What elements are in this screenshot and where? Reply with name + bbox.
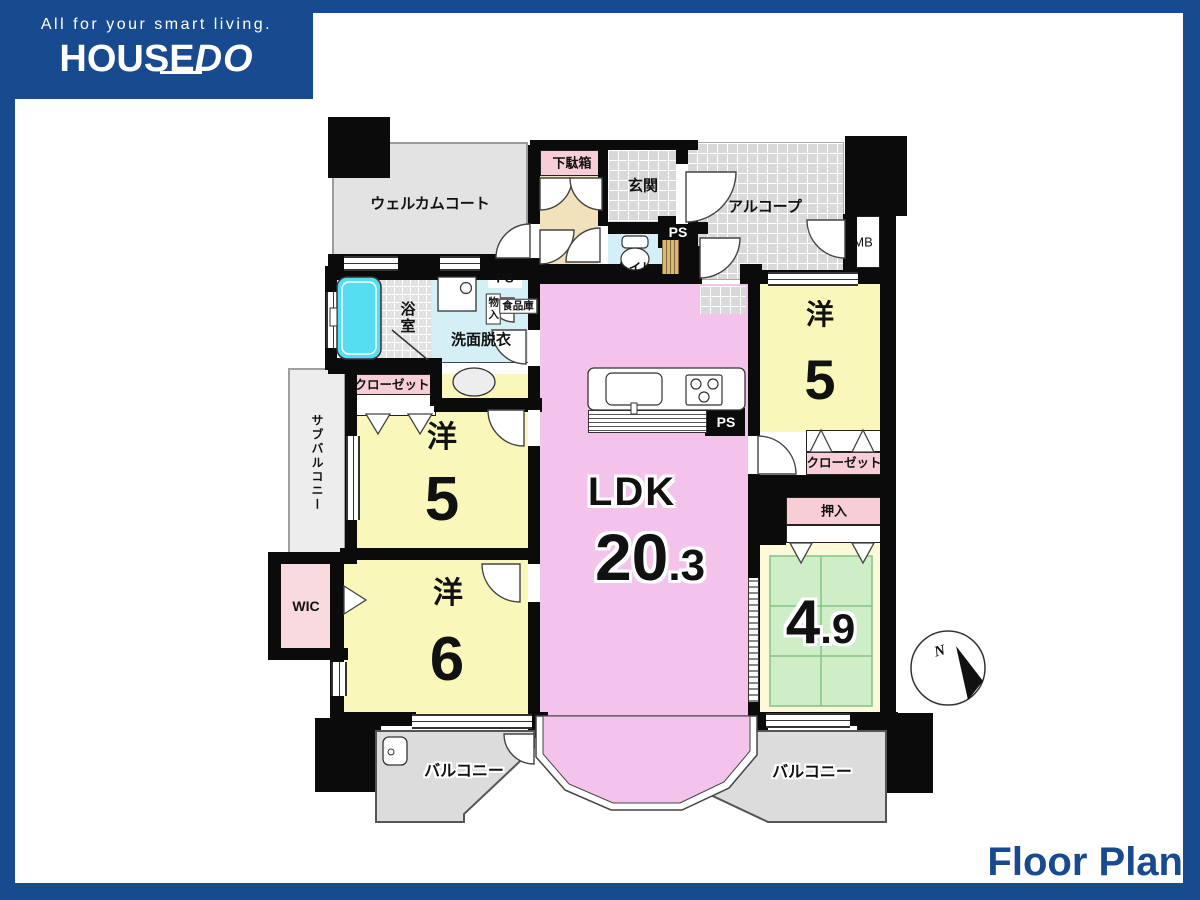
label-japanese-size: 4.9 [758,592,883,654]
japanese-size-dec: .9 [820,605,855,652]
wall [752,475,896,497]
ldk-entry-tile [700,286,746,314]
closet-left-door [356,394,436,416]
wall [340,548,532,560]
bay-window-outer [536,716,757,810]
frame-bottom [0,883,1200,900]
label-west5-right-type: 洋 [806,301,834,329]
label-balcony-right: バルコニー [772,765,852,781]
compass [911,631,985,705]
door-gap [528,330,540,366]
page-title: Floor Plan [987,840,1183,885]
label-shoe-box: 下駄箱 [552,157,591,170]
compass-needle [956,646,983,700]
label-closet-right: クローゼット [806,457,881,470]
door-gap [528,564,540,602]
corner-block-br [857,713,933,793]
label-closet-left: クローゼット [354,379,429,392]
ldk-size-dec: .3 [668,541,705,590]
wall [268,552,281,660]
label-alcove: アルコープ [728,200,802,215]
brand-logo-block: All for your smart living. HOUSEDO [0,0,313,99]
window [344,256,398,271]
label-ldk-size: 20.3 [545,524,755,590]
balcony-faucet [383,737,407,765]
wall [756,495,786,545]
label-storage: 物入 [486,294,501,325]
window [440,256,480,271]
label-entrance: 玄関 [628,179,658,194]
brand-logo: HOUSEDO [0,38,313,81]
frame-right [1183,0,1200,900]
label-west6-type: 洋 [433,579,463,609]
door-gap [748,436,760,474]
label-balcony-left: バルコニー [424,764,504,780]
oshiire-door [786,525,882,543]
logo-underline [160,71,202,74]
kitchen-counter-front [588,410,707,433]
frame-left [0,0,15,900]
japanese-size-int: 4 [786,588,820,657]
label-compass-north: N [933,643,947,660]
door-balcony-left [504,734,534,764]
label-ps-toilet: PS [669,225,688,239]
label-ldk-name: LDK [588,472,676,512]
label-sub-balcony: サブバルコニー [311,414,323,512]
wall [748,712,768,738]
label-ps-wash: PS [496,272,513,285]
logo-do: DO [195,38,254,80]
door-gap [676,164,688,224]
wall [530,140,698,150]
label-pantry: 食品庫 [499,299,537,314]
window [331,662,347,696]
label-mb: MB [853,236,873,249]
window [326,292,340,348]
room-washroom [432,280,530,364]
label-west5-left-type: 洋 [427,423,457,453]
ldk-size-int: 20 [595,520,668,594]
label-wic: WIC [292,599,319,613]
label-toilet: トイレ [616,262,654,275]
corner-block-bl [315,718,381,792]
door-gap [528,410,540,446]
window [346,436,360,520]
wall [330,562,344,658]
window [768,272,858,286]
door-gap [528,224,540,258]
label-welcome-court: ウェルカムコート [370,197,490,212]
wall [434,398,542,412]
label-washroom: 洗面脱衣 [451,333,511,348]
corner-block-tr [845,136,907,216]
wall [348,362,440,374]
closet-right-door [806,430,882,452]
label-bath: 浴室 [400,301,415,335]
window [412,714,532,729]
brand-tagline: All for your smart living. [0,16,313,34]
door-gap [598,226,608,264]
label-ps-kitchen: PS [717,415,736,429]
label-west6-size: 6 [430,629,464,691]
label-oshiire: 押入 [821,505,847,518]
duct-hatch [662,240,679,274]
window [766,713,850,728]
door-west5-right [758,436,796,474]
label-west5-left-size: 5 [425,469,459,531]
floor-plan-page: All for your smart living. HOUSEDO Floor… [0,0,1200,900]
label-west5-right-size: 5 [804,352,835,408]
corner-block-tl [328,117,390,178]
bay-window-inner [543,716,750,803]
